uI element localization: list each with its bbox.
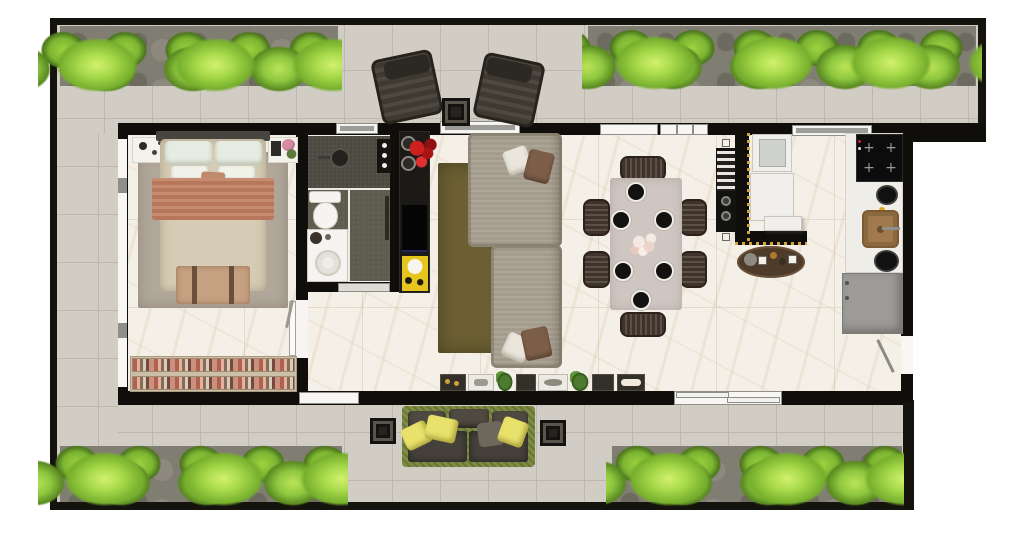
outer-wall-right-bottom (903, 400, 914, 510)
bar-bottle (770, 252, 777, 259)
towel-hook (382, 163, 387, 168)
laundry-tub-basin (759, 139, 786, 167)
kitchen-bowl (876, 185, 898, 205)
bed-bench (176, 266, 250, 304)
laundry-trim-horizontal (735, 242, 807, 245)
grill-tray (440, 374, 466, 391)
vanity-vessel (310, 232, 322, 244)
nightstand-decor (152, 150, 157, 155)
outlet (722, 139, 730, 147)
fridge-hinge (845, 296, 849, 300)
utility-knob (721, 211, 731, 221)
bed-throw-blanket (152, 178, 274, 220)
grill-tray (592, 374, 614, 391)
tray-gold-dots (445, 379, 450, 384)
place-setting (613, 261, 633, 281)
place-setting (611, 210, 631, 230)
fridge (842, 273, 903, 334)
toilet-bowl (313, 202, 338, 229)
place-setting (626, 182, 646, 202)
shower-head (330, 148, 350, 168)
nightstand-tray (271, 141, 281, 156)
sliding-door-panel (727, 397, 780, 403)
herb-plant (496, 371, 514, 393)
towel-hook (382, 153, 387, 158)
bedroom-west-mullion (118, 178, 127, 193)
burner: + (884, 161, 898, 175)
floral-centerpiece (623, 229, 663, 261)
bed-pillow (215, 141, 262, 165)
terrace-side-table (442, 98, 470, 126)
dining-chair (680, 199, 707, 236)
burner: + (862, 141, 876, 155)
laundry-shelf (764, 216, 802, 231)
terrace-side-table (370, 418, 396, 444)
kitchen-pot (874, 250, 899, 272)
wall-bottom (118, 391, 905, 405)
laundry-counter (750, 173, 794, 221)
board-items (474, 379, 488, 386)
dining-chair (583, 199, 610, 236)
hedge-bottom-right (606, 438, 904, 512)
terrace-side-table (540, 420, 566, 446)
hedge-top-right (582, 22, 982, 102)
vanity-sink (315, 250, 341, 276)
shower-glass-vertical (348, 190, 350, 282)
faucet (882, 227, 900, 230)
corridor-terrace-door (299, 392, 359, 404)
wardrobe-clothes-row (132, 358, 295, 372)
fridge-hinge (845, 281, 849, 285)
hedge-top-left (38, 24, 342, 108)
bedroom-west-window (118, 139, 127, 387)
bathroom-sliding-door (338, 283, 390, 292)
bar-item (744, 253, 757, 266)
dining-chair (680, 251, 707, 288)
bar-coaster (758, 256, 767, 265)
bedroom-west-mullion (118, 323, 127, 338)
bar-coaster (788, 255, 797, 264)
wardrobe-clothes-row (132, 376, 295, 390)
terrace-door (660, 124, 708, 135)
dining-chair (620, 312, 666, 337)
burner: + (862, 161, 876, 175)
bench-strap (192, 266, 197, 304)
fish-icon (544, 379, 562, 386)
bedroom-door-opening (296, 300, 308, 358)
bread-icon (621, 379, 641, 386)
nightstand-decor (139, 142, 147, 150)
place-setting (654, 210, 674, 230)
dining-window (600, 124, 658, 135)
herb-plant (570, 371, 590, 393)
cooktop-control (858, 140, 861, 143)
bench-strap (229, 266, 234, 304)
bar-bottle (779, 258, 786, 265)
burner: + (884, 141, 898, 155)
grill-tray (516, 374, 536, 391)
place-setting (654, 261, 674, 281)
vanity-bottle (325, 234, 331, 240)
terrace-door-frame (692, 124, 694, 135)
utility-knob (721, 196, 731, 206)
outlet (722, 233, 730, 241)
utility-vents (717, 151, 735, 191)
shower-fixture (385, 196, 389, 240)
terrace-door-frame (676, 124, 678, 135)
grill-counter (432, 371, 648, 393)
bathroom-window-glass (339, 125, 375, 132)
tv-screen (402, 205, 427, 252)
place-setting (631, 290, 651, 310)
bed-pillow (165, 141, 212, 165)
yellow-art-piece (402, 256, 428, 291)
tray-gold-dots (454, 381, 459, 386)
nightstand-plant-leaves (286, 149, 297, 159)
floor-plan-stage: + + + + (0, 0, 1024, 539)
red-flowers (408, 138, 438, 172)
cooktop-control (858, 147, 861, 150)
entry-door-opening (901, 336, 913, 374)
towel-hook (382, 143, 387, 148)
dining-chair (583, 251, 610, 288)
sliding-door-panel (676, 392, 729, 398)
hedge-bottom-left (38, 440, 348, 514)
